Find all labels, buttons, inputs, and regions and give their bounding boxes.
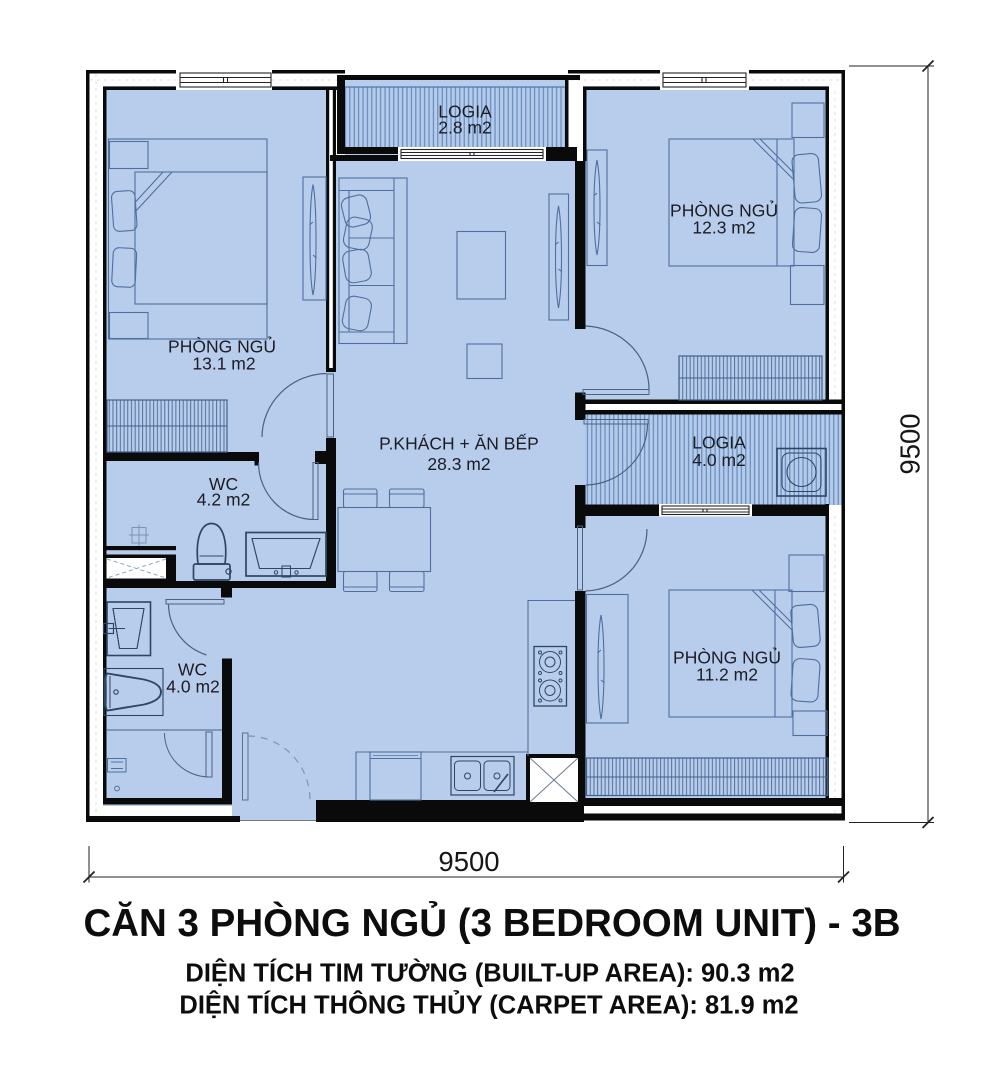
svg-text:DIỆN TÍCH THÔNG THỦY (CARPET A: DIỆN TÍCH THÔNG THỦY (CARPET AREA): 81.9… <box>179 990 798 1020</box>
svg-text:2.8 m2: 2.8 m2 <box>438 118 492 138</box>
svg-text:4.0 m2: 4.0 m2 <box>692 450 746 470</box>
svg-text:11.2 m2: 11.2 m2 <box>696 665 758 685</box>
svg-text:12.3 m2: 12.3 m2 <box>692 218 755 238</box>
svg-text:P.KHÁCH + ĂN BẾP: P.KHÁCH + ĂN BẾP <box>379 433 539 454</box>
svg-text:4.2 m2: 4.2 m2 <box>197 490 251 510</box>
svg-text:DIỆN TÍCH TIM TƯỜNG (BUILT-UP: DIỆN TÍCH TIM TƯỜNG (BUILT-UP AREA): 90.… <box>185 958 794 988</box>
svg-text:9500: 9500 <box>438 846 499 877</box>
svg-text:13.1 m2: 13.1 m2 <box>192 354 255 374</box>
svg-text:4.0 m2: 4.0 m2 <box>166 677 220 697</box>
svg-text:28.3 m2: 28.3 m2 <box>427 454 490 474</box>
svg-text:9500: 9500 <box>895 413 926 474</box>
svg-text:CĂN 3 PHÒNG NGỦ (3 BEDROOM UNI: CĂN 3 PHÒNG NGỦ (3 BEDROOM UNIT) - 3B <box>83 901 900 945</box>
